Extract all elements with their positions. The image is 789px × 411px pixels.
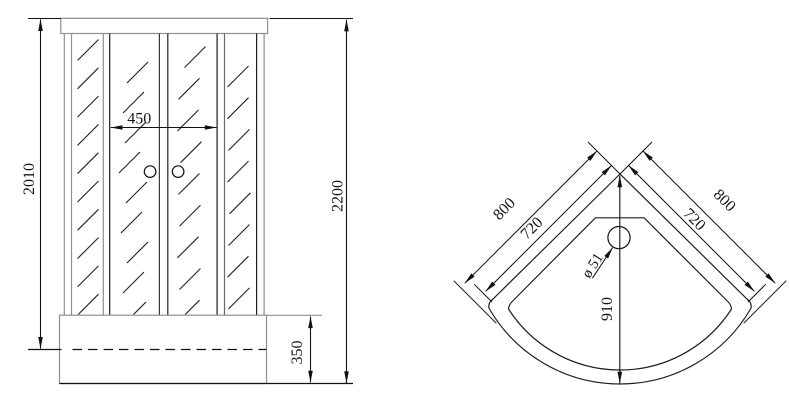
svg-text:910: 910: [599, 297, 616, 321]
svg-text:2010: 2010: [21, 163, 38, 195]
svg-text:350: 350: [289, 341, 306, 365]
svg-text:2200: 2200: [329, 180, 346, 212]
svg-text:450: 450: [127, 111, 151, 128]
